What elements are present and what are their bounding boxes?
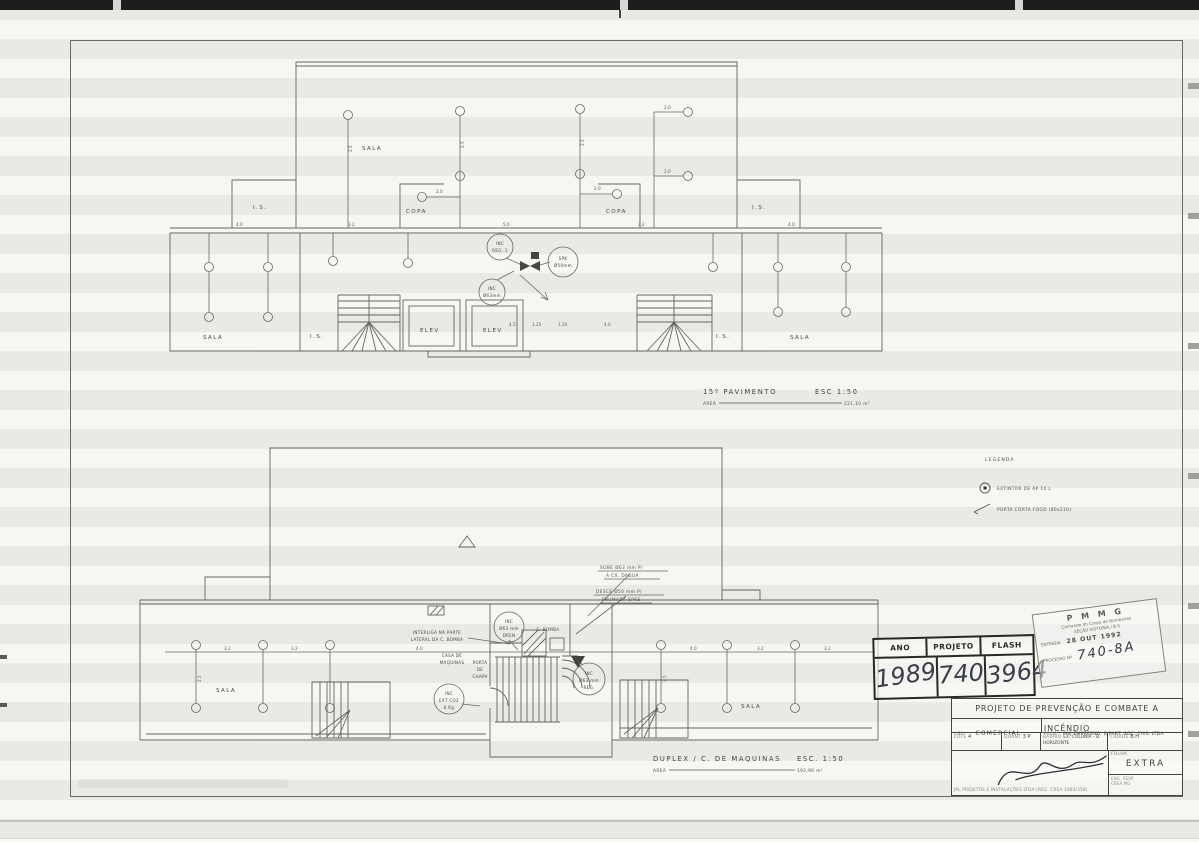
project-title: PROJETO DE PREVENÇÃO E COMBATE A INCÊNDI… bbox=[952, 699, 1182, 719]
pipe-callout: DREN bbox=[503, 633, 516, 638]
sprinkler-points bbox=[192, 641, 800, 713]
scan-line bbox=[0, 838, 1199, 839]
pipe-callout: INC bbox=[488, 286, 496, 291]
area-value: 192,90 m² bbox=[797, 768, 823, 774]
room-label: SALA bbox=[216, 688, 236, 694]
legend-item: PORTA CORTA FOGO (80x210) bbox=[997, 507, 1071, 513]
scan-notch bbox=[620, 0, 628, 10]
room-label: ELEV bbox=[483, 328, 503, 334]
pipe-callout: SPK bbox=[559, 256, 568, 261]
room-label: I.S. bbox=[752, 205, 766, 211]
scan-mark bbox=[1188, 83, 1199, 89]
city-label: CIDADE bbox=[1110, 735, 1129, 740]
annotation: INTERLIGA NA PARTE bbox=[413, 630, 461, 635]
scanned-blueprint-sheet: SALA I.S. COPA COPA I.S. SALA I.S. ELEV … bbox=[0, 0, 1199, 842]
annotation: A CX. DAGUA bbox=[606, 573, 639, 579]
dimension: 4.0 bbox=[690, 646, 697, 651]
legend-title: LEGENDA bbox=[985, 457, 1015, 463]
room-label: I.S. bbox=[716, 334, 730, 340]
room-label: MAQUINAS bbox=[440, 660, 465, 665]
scan-mark bbox=[0, 655, 7, 659]
extinguisher-icon-dot bbox=[984, 487, 987, 490]
plan-scale: ESC. 1:50 bbox=[797, 755, 844, 763]
pipe-callout: INC bbox=[505, 619, 513, 624]
dimension: 1.20 bbox=[558, 322, 568, 327]
room-label: SALA bbox=[741, 704, 761, 710]
pipe-callout: Ø63 mm bbox=[499, 626, 519, 631]
lower-plan-walls bbox=[140, 448, 878, 757]
room-label: COPA bbox=[406, 209, 427, 215]
scan-mark bbox=[1188, 343, 1199, 349]
room-label: I.S. bbox=[253, 205, 267, 211]
handwritten-project-number: 740 bbox=[937, 655, 985, 692]
scan-mark bbox=[0, 703, 7, 707]
upper-plan-walls bbox=[170, 62, 882, 357]
handwritten-year: 1989 bbox=[873, 654, 938, 697]
dimension: 3.2 bbox=[224, 646, 231, 651]
room-label: CASA DE bbox=[442, 653, 462, 658]
annotation: LATERAL DA C. BOMBA bbox=[411, 637, 463, 642]
room-label: SALA bbox=[203, 335, 223, 341]
stamp-header-ano: ANO bbox=[874, 639, 928, 657]
dimension: 2.5 bbox=[580, 139, 585, 146]
pipe-callout: REG. bbox=[583, 685, 594, 690]
upper-plan-piping bbox=[205, 105, 851, 322]
pipe-callout: Ø50mm bbox=[554, 263, 572, 268]
city-value: B.H bbox=[1130, 734, 1139, 740]
lot-value: 4 bbox=[968, 734, 971, 740]
dimension: 4.0 bbox=[236, 222, 243, 227]
room-label: I.S. bbox=[310, 334, 324, 340]
scan-mark bbox=[1188, 731, 1199, 737]
signature bbox=[985, 748, 1135, 788]
legend: LEGENDA EXTINTOR DE AP 10 L PORTA CORTA … bbox=[974, 457, 1071, 514]
pipe-callout: Ø63 mm bbox=[579, 678, 599, 683]
plan-title: 15º PAVIMENTO bbox=[703, 388, 777, 396]
room-label: SALA bbox=[790, 335, 810, 341]
lot-label: LOTE bbox=[954, 735, 966, 740]
quantity-label: QUANT bbox=[1004, 735, 1021, 740]
dimension: 3.2 bbox=[757, 646, 764, 651]
door-label: PORTA bbox=[473, 660, 488, 665]
pipe-callout: INC bbox=[496, 241, 504, 246]
door-label: DE bbox=[477, 667, 483, 672]
lower-plan-title: DUPLEX / C. DE MAQUINAS ESC. 1:50 AREA 1… bbox=[653, 755, 844, 774]
sprinkler-points bbox=[205, 105, 851, 322]
stamp-header-projeto: PROJETO bbox=[928, 637, 982, 655]
equipment-label: C. BOMBA bbox=[537, 627, 560, 632]
annotation: PRUMADA SPKS bbox=[602, 597, 641, 603]
fold-mark bbox=[619, 10, 621, 18]
scan-notch bbox=[113, 0, 121, 10]
plan-title: DUPLEX / C. DE MAQUINAS bbox=[653, 755, 781, 763]
owner-field: PROP. PMJ EMPREEND. E PART. SOC. CIVIL L… bbox=[1042, 719, 1182, 733]
pipe-callout: Ø63mm bbox=[483, 293, 501, 298]
dimension: 2.0 bbox=[664, 105, 671, 110]
room-label: COPA bbox=[606, 209, 627, 215]
room-label: SALA bbox=[362, 146, 382, 152]
fire-door-icon bbox=[974, 504, 990, 514]
pipe-callout: INC bbox=[585, 671, 593, 676]
dimension: 2.5 bbox=[348, 145, 353, 152]
area-label: AREA bbox=[703, 401, 716, 407]
room-label: ELEV bbox=[420, 328, 440, 334]
use-field: USO COMERCIAL bbox=[952, 719, 1042, 733]
stamp-header-flash: FLASH bbox=[981, 636, 1033, 654]
annotation: DESCE Ø50 mm P/ bbox=[596, 588, 642, 595]
dimension: 2.5 bbox=[662, 675, 667, 682]
door-label: CHAPA bbox=[472, 674, 487, 679]
dimension: 3.2 bbox=[824, 646, 831, 651]
scan-notch bbox=[1015, 0, 1023, 10]
district-label: BAIRRO bbox=[1043, 735, 1062, 740]
lower-plan-piping bbox=[165, 571, 875, 714]
dimension: 5.0 bbox=[503, 222, 510, 227]
dimension: 2.0 bbox=[594, 186, 601, 191]
quantity-value: 3 P bbox=[1023, 734, 1031, 740]
dimension: 3.2 bbox=[348, 222, 355, 227]
plan-scale: ESC 1:50 bbox=[815, 388, 859, 396]
dimension: 4.0 bbox=[788, 222, 795, 227]
scan-mark bbox=[1188, 213, 1199, 219]
scan-smudge bbox=[78, 779, 288, 788]
pipe-callout: REG. 1 bbox=[492, 248, 508, 253]
dimension: 3.2 bbox=[638, 222, 645, 227]
handwritten-process-number: 740-8A bbox=[1077, 639, 1137, 663]
dimension: 4.0 bbox=[604, 322, 611, 327]
dimension: 1.25 bbox=[532, 322, 542, 327]
annotation: SOBE Ø63 mm P/ bbox=[600, 564, 643, 571]
legend-item: EXTINTOR DE AP 10 L bbox=[997, 486, 1051, 492]
dimension: 2.5 bbox=[197, 675, 202, 682]
pipe-callout: 6 Kg bbox=[444, 705, 454, 710]
valve-symbol bbox=[520, 261, 540, 271]
dimension: 4.5 bbox=[509, 322, 516, 327]
dimension: 2.5 bbox=[460, 141, 465, 148]
area-value: 221,10 m² bbox=[844, 401, 870, 407]
pmmg-entrada-label: ENTRADA bbox=[1040, 640, 1060, 648]
lower-plan-labels: SALA SALA CASA DE MAQUINAS PORTA DE CHAP… bbox=[197, 564, 831, 710]
hydrant-symbol bbox=[531, 252, 539, 259]
dimension: 3.2 bbox=[291, 646, 298, 651]
area-label: AREA bbox=[653, 768, 666, 774]
dimension: 4.0 bbox=[416, 646, 423, 651]
pipe-callout: EXT CO2 bbox=[439, 698, 459, 703]
pmmg-processo-label: PROCESSO Nº bbox=[1043, 655, 1073, 664]
sheet-bottom-edge bbox=[0, 820, 1199, 822]
scan-mark bbox=[1188, 603, 1199, 609]
scan-mark bbox=[1188, 473, 1199, 479]
dimension: 2.0 bbox=[664, 169, 671, 174]
upper-plan-title: 15º PAVIMENTO ESC 1:50 AREA 221,10 m² bbox=[703, 388, 870, 407]
dimension: 2.0 bbox=[436, 189, 443, 194]
pipe-callout: INC bbox=[445, 691, 453, 696]
ano-projeto-flash-stamp: ANO PROJETO FLASH 1989 740 3964 bbox=[872, 634, 1035, 700]
